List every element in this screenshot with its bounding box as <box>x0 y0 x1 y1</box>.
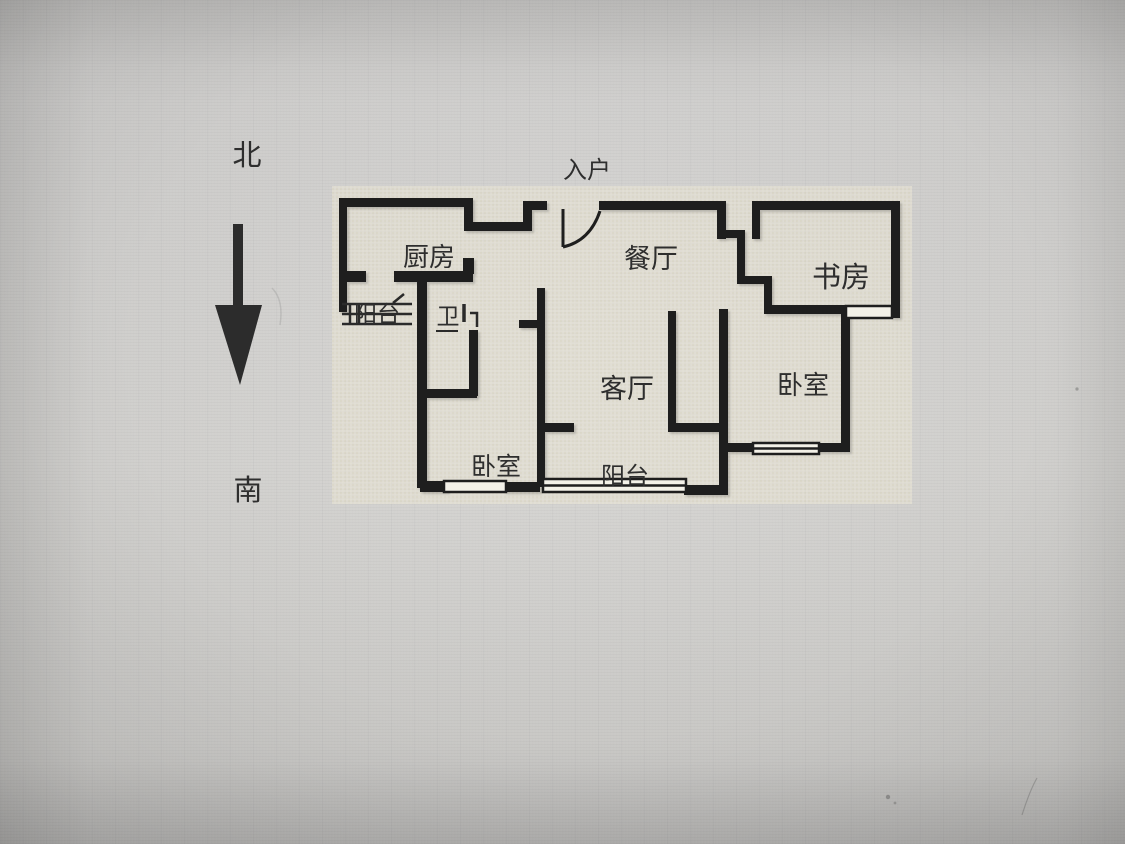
wall <box>719 449 728 495</box>
room-label-entrance: 入户 <box>563 156 611 184</box>
wall <box>504 482 540 492</box>
wall <box>764 305 848 314</box>
wall <box>668 311 676 432</box>
wall <box>599 201 726 210</box>
south-label: 南 <box>233 473 262 507</box>
wall <box>463 258 474 274</box>
room-label-balcony-west: 阳台 <box>354 302 400 328</box>
wall <box>540 423 574 432</box>
wall <box>464 222 532 231</box>
window <box>444 481 506 492</box>
room-label-bedroom-south: 卧室 <box>471 452 521 481</box>
screen-photo: { "compass": { "north": "北", "south": "南… <box>0 0 1125 844</box>
room-label-study: 书房 <box>812 260 870 294</box>
room-label-balcony-south: 阳台 <box>601 462 649 490</box>
floor-plan: 北 南 <box>0 0 1125 844</box>
room-label-kitchen: 厨房 <box>403 243 455 273</box>
wall <box>519 320 537 328</box>
wall <box>339 198 473 207</box>
wall <box>817 443 847 452</box>
wall <box>737 230 745 284</box>
wall <box>523 201 547 210</box>
room-label-bathroom: 卫 <box>437 304 460 330</box>
north-label: 北 <box>232 138 261 172</box>
window <box>846 306 892 318</box>
room-label-living-room: 客厅 <box>600 374 654 405</box>
wall <box>891 201 900 318</box>
south-arrow-icon <box>215 224 262 385</box>
wall <box>469 330 478 396</box>
compass: 北 南 <box>215 138 263 507</box>
room-label-dining-room: 餐厅 <box>624 244 678 275</box>
wall <box>417 277 427 488</box>
room-label-bedroom-east: 卧室 <box>777 371 829 401</box>
wall <box>420 389 477 398</box>
wall <box>752 201 899 210</box>
wall <box>841 313 850 452</box>
wall <box>339 271 366 282</box>
wall <box>537 288 545 487</box>
wall <box>668 423 726 432</box>
wall <box>339 198 347 312</box>
